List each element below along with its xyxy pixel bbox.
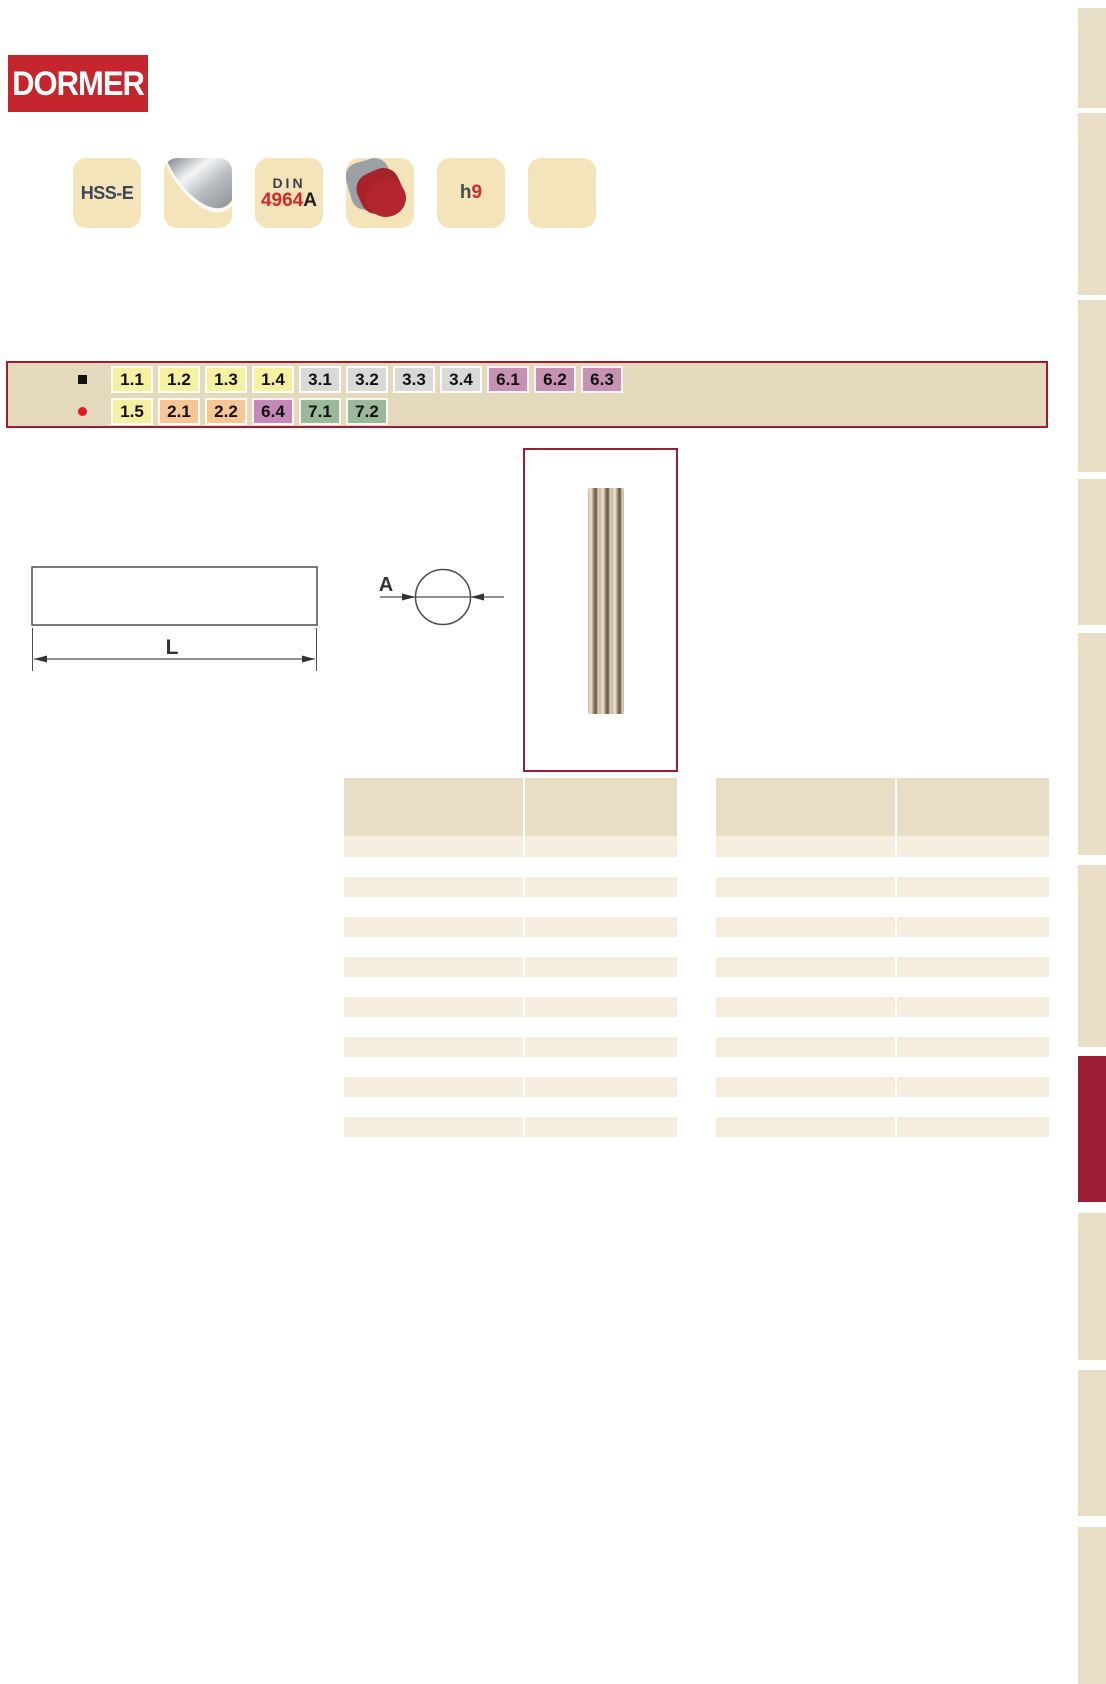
sidebar-tab-5[interactable] — [1078, 633, 1106, 855]
tag-chip-2.1[interactable]: 2.1 — [158, 398, 200, 425]
sidebar-tab-8[interactable] — [1078, 1213, 1106, 1360]
table-cell — [344, 917, 523, 937]
tag-chip-6.3[interactable]: 6.3 — [581, 366, 623, 393]
sidebar-tab-6[interactable] — [1078, 865, 1106, 1047]
table-header-cell — [344, 778, 523, 836]
dormer-logo-text: DORMER — [12, 63, 144, 103]
table-row — [344, 1117, 677, 1137]
din-number: 4964A — [261, 191, 317, 210]
din-label: DIN — [272, 176, 305, 191]
badge-din-standard: DIN 4964A — [255, 158, 323, 228]
sidebar-tab-2[interactable] — [1078, 113, 1106, 295]
table-cell — [716, 997, 895, 1017]
table-cell — [525, 1117, 677, 1137]
table-cell — [344, 1077, 523, 1097]
tag-chip-3.1[interactable]: 3.1 — [299, 366, 341, 393]
table-row — [344, 877, 677, 897]
tag-chip-2.2[interactable]: 2.2 — [205, 398, 247, 425]
table-cell — [344, 1117, 523, 1137]
tag-row-1: 1.11.21.31.43.13.23.33.46.16.26.3 — [111, 366, 623, 393]
table-row — [716, 1077, 1049, 1097]
table-cell — [716, 1037, 895, 1057]
table-cell — [716, 1077, 895, 1097]
tag-chip-6.4[interactable]: 6.4 — [252, 398, 294, 425]
tag-row-2: 1.52.12.26.47.17.2 — [111, 398, 388, 425]
table-cell — [525, 877, 677, 897]
badge-bright-finish — [164, 158, 232, 228]
sidebar-tab-10[interactable] — [1078, 1527, 1106, 1684]
length-dim-label: L — [166, 636, 179, 659]
product-photo-frame — [523, 448, 678, 772]
table-cell — [344, 836, 523, 857]
table-cell — [897, 1037, 1049, 1057]
table-cell — [897, 917, 1049, 937]
property-badges: HSS-E DIN 4964A — [73, 158, 596, 228]
dormer-logo: DORMER — [8, 55, 148, 112]
tag-chip-1.3[interactable]: 1.3 — [205, 366, 247, 393]
tag-chip-3.2[interactable]: 3.2 — [346, 366, 388, 393]
size-table-right — [716, 778, 1049, 1137]
table-cell — [716, 877, 895, 897]
diameter-dim-label: A — [379, 574, 393, 596]
table-cell — [525, 957, 677, 977]
table-cell — [897, 997, 1049, 1017]
table-cell — [344, 957, 523, 977]
tag-chip-1.5[interactable]: 1.5 — [111, 398, 153, 425]
application-code-band: 1.11.21.31.43.13.23.33.46.16.26.3 1.52.1… — [6, 361, 1048, 428]
catalog-page: DORMER HSS-E DIN — [0, 0, 1106, 1684]
tag-chip-1.2[interactable]: 1.2 — [158, 366, 200, 393]
dimension-drawing: L A — [28, 560, 518, 685]
size-table-left — [344, 778, 677, 1137]
tag-chip-7.2[interactable]: 7.2 — [346, 398, 388, 425]
sidebar-tab-7-active[interactable] — [1078, 1056, 1106, 1202]
badge-material-hss-e: HSS-E — [73, 158, 141, 228]
table-cell — [525, 836, 677, 857]
table-cell — [716, 957, 895, 977]
table-cell — [525, 1037, 677, 1057]
table-row — [716, 877, 1049, 897]
table-cell — [525, 1077, 677, 1097]
tag-chip-6.2[interactable]: 6.2 — [534, 366, 576, 393]
table-row — [344, 836, 677, 857]
table-cell — [897, 1077, 1049, 1097]
table-cell — [897, 877, 1049, 897]
table-cell — [525, 917, 677, 937]
table-header-cell — [525, 778, 677, 836]
tag-chip-7.1[interactable]: 7.1 — [299, 398, 341, 425]
bright-finish-icon — [164, 158, 232, 228]
tag-chip-6.1[interactable]: 6.1 — [487, 366, 529, 393]
badge-material-label: HSS-E — [81, 183, 134, 204]
tag-chip-3.3[interactable]: 3.3 — [393, 366, 435, 393]
tag-chip-1.1[interactable]: 1.1 — [111, 366, 153, 393]
table-row — [716, 836, 1049, 857]
table-row — [344, 957, 677, 977]
application-row-2: 1.52.12.26.47.17.2 — [78, 398, 388, 425]
sidebar-tab-4[interactable] — [1078, 479, 1106, 625]
table-row — [716, 917, 1049, 937]
table-cell — [344, 997, 523, 1017]
table-row — [344, 1077, 677, 1097]
table-cell — [344, 877, 523, 897]
sidebar-tab-3[interactable] — [1078, 300, 1106, 472]
table-cell — [344, 1037, 523, 1057]
table-header-cell — [897, 778, 1049, 836]
table-header-cell — [716, 778, 895, 836]
table-cell — [525, 997, 677, 1017]
round-tool-bit-icon — [346, 158, 414, 228]
table-row — [716, 1037, 1049, 1057]
table-row — [344, 997, 677, 1017]
badge-tolerance-h9: h9 — [437, 158, 505, 228]
table-cell — [716, 1117, 895, 1137]
table-header — [344, 778, 677, 836]
tool-bit-blank-photo — [588, 488, 624, 714]
sidebar-tab-1[interactable] — [1078, 8, 1106, 108]
table-cell — [716, 836, 895, 857]
badge-blank — [528, 158, 596, 228]
table-cell — [897, 1117, 1049, 1137]
sidebar-tab-9[interactable] — [1078, 1370, 1106, 1516]
tag-chip-1.4[interactable]: 1.4 — [252, 366, 294, 393]
red-dot-bullet — [78, 407, 87, 416]
table-header — [716, 778, 1049, 836]
badge-round-tool-bit — [346, 158, 414, 228]
tolerance-label: h9 — [460, 182, 482, 204]
table-row — [716, 957, 1049, 977]
table-row — [344, 917, 677, 937]
table-cell — [716, 917, 895, 937]
tag-chip-3.4[interactable]: 3.4 — [440, 366, 482, 393]
table-cell — [897, 957, 1049, 977]
application-row-1: 1.11.21.31.43.13.23.33.46.16.26.3 — [78, 366, 623, 393]
table-row — [716, 997, 1049, 1017]
table-cell — [897, 836, 1049, 857]
black-square-bullet — [78, 375, 87, 384]
table-row — [344, 1037, 677, 1057]
table-row — [716, 1117, 1049, 1137]
